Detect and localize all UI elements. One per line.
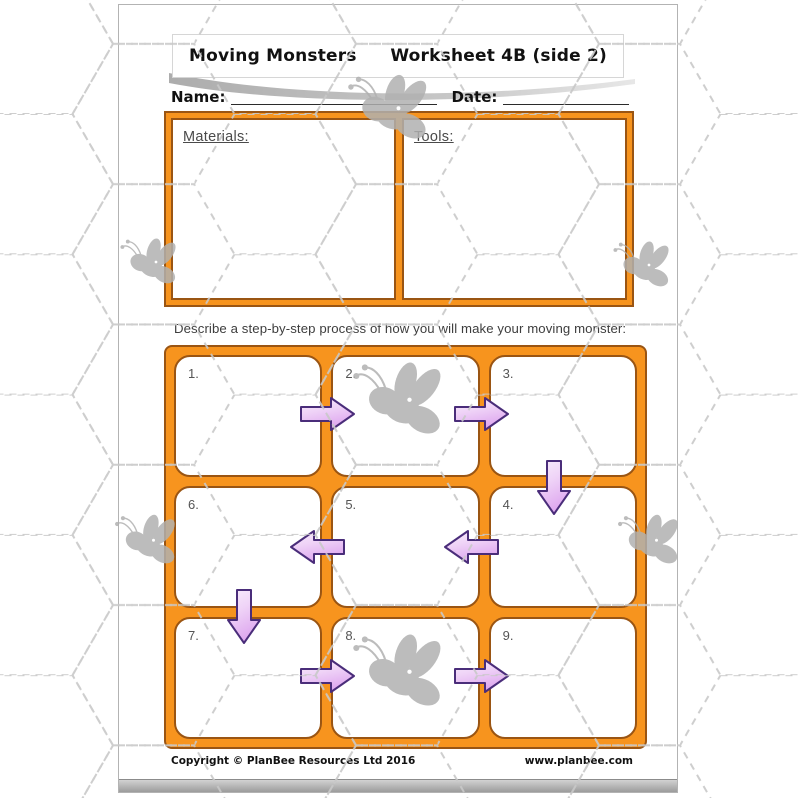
flow-arrow-left-4-5	[442, 527, 500, 567]
step-number: 2.	[345, 366, 356, 381]
steps-grid: 1. 2. 3. 6. 5. 4. 7. 8. 9.	[164, 345, 647, 749]
tools-cell: Tools:	[402, 118, 627, 300]
step-number: 9.	[503, 628, 514, 643]
title-banner: Moving Monsters Worksheet 4B (side 2)	[172, 34, 624, 78]
page-bottom-edge-bar	[119, 779, 677, 792]
step-number: 1.	[188, 366, 199, 381]
flow-arrow-left-5-6	[288, 527, 346, 567]
date-label: Date:	[451, 90, 503, 105]
materials-label: Materials:	[183, 129, 249, 145]
flow-arrow-down-6-7	[224, 588, 264, 646]
page-title: Moving Monsters	[189, 46, 357, 66]
flow-arrow-right-2-3	[453, 394, 511, 434]
step-number: 5.	[345, 497, 356, 512]
instruction-text: Describe a step-by-step process of how y…	[174, 321, 644, 336]
tools-label: Tools:	[414, 129, 454, 145]
copyright-text: Copyright © PlanBee Resources Ltd 2016	[171, 755, 415, 767]
worksheet-page: Moving Monsters Worksheet 4B (side 2) Na…	[118, 4, 678, 793]
flow-arrow-right-7-8	[299, 656, 357, 696]
materials-cell: Materials:	[171, 118, 396, 300]
website-text: www.planbee.com	[525, 755, 633, 767]
name-label: Name:	[171, 90, 231, 105]
flow-arrow-right-8-9	[453, 656, 511, 696]
flow-arrow-right-1-2	[299, 394, 357, 434]
worksheet-label: Worksheet 4B (side 2)	[390, 46, 607, 66]
date-write-line	[503, 88, 629, 105]
name-date-row: Name: Date:	[171, 85, 629, 105]
materials-tools-box: Materials: Tools:	[164, 111, 634, 307]
step-number: 8.	[345, 628, 356, 643]
flow-arrow-down-3-4	[534, 459, 574, 517]
step-number: 4.	[503, 497, 514, 512]
step-number: 7.	[188, 628, 199, 643]
step-number: 3.	[503, 366, 514, 381]
name-write-line	[231, 88, 437, 105]
footer-row: Copyright © PlanBee Resources Ltd 2016 w…	[171, 755, 633, 767]
step-number: 6.	[188, 497, 199, 512]
